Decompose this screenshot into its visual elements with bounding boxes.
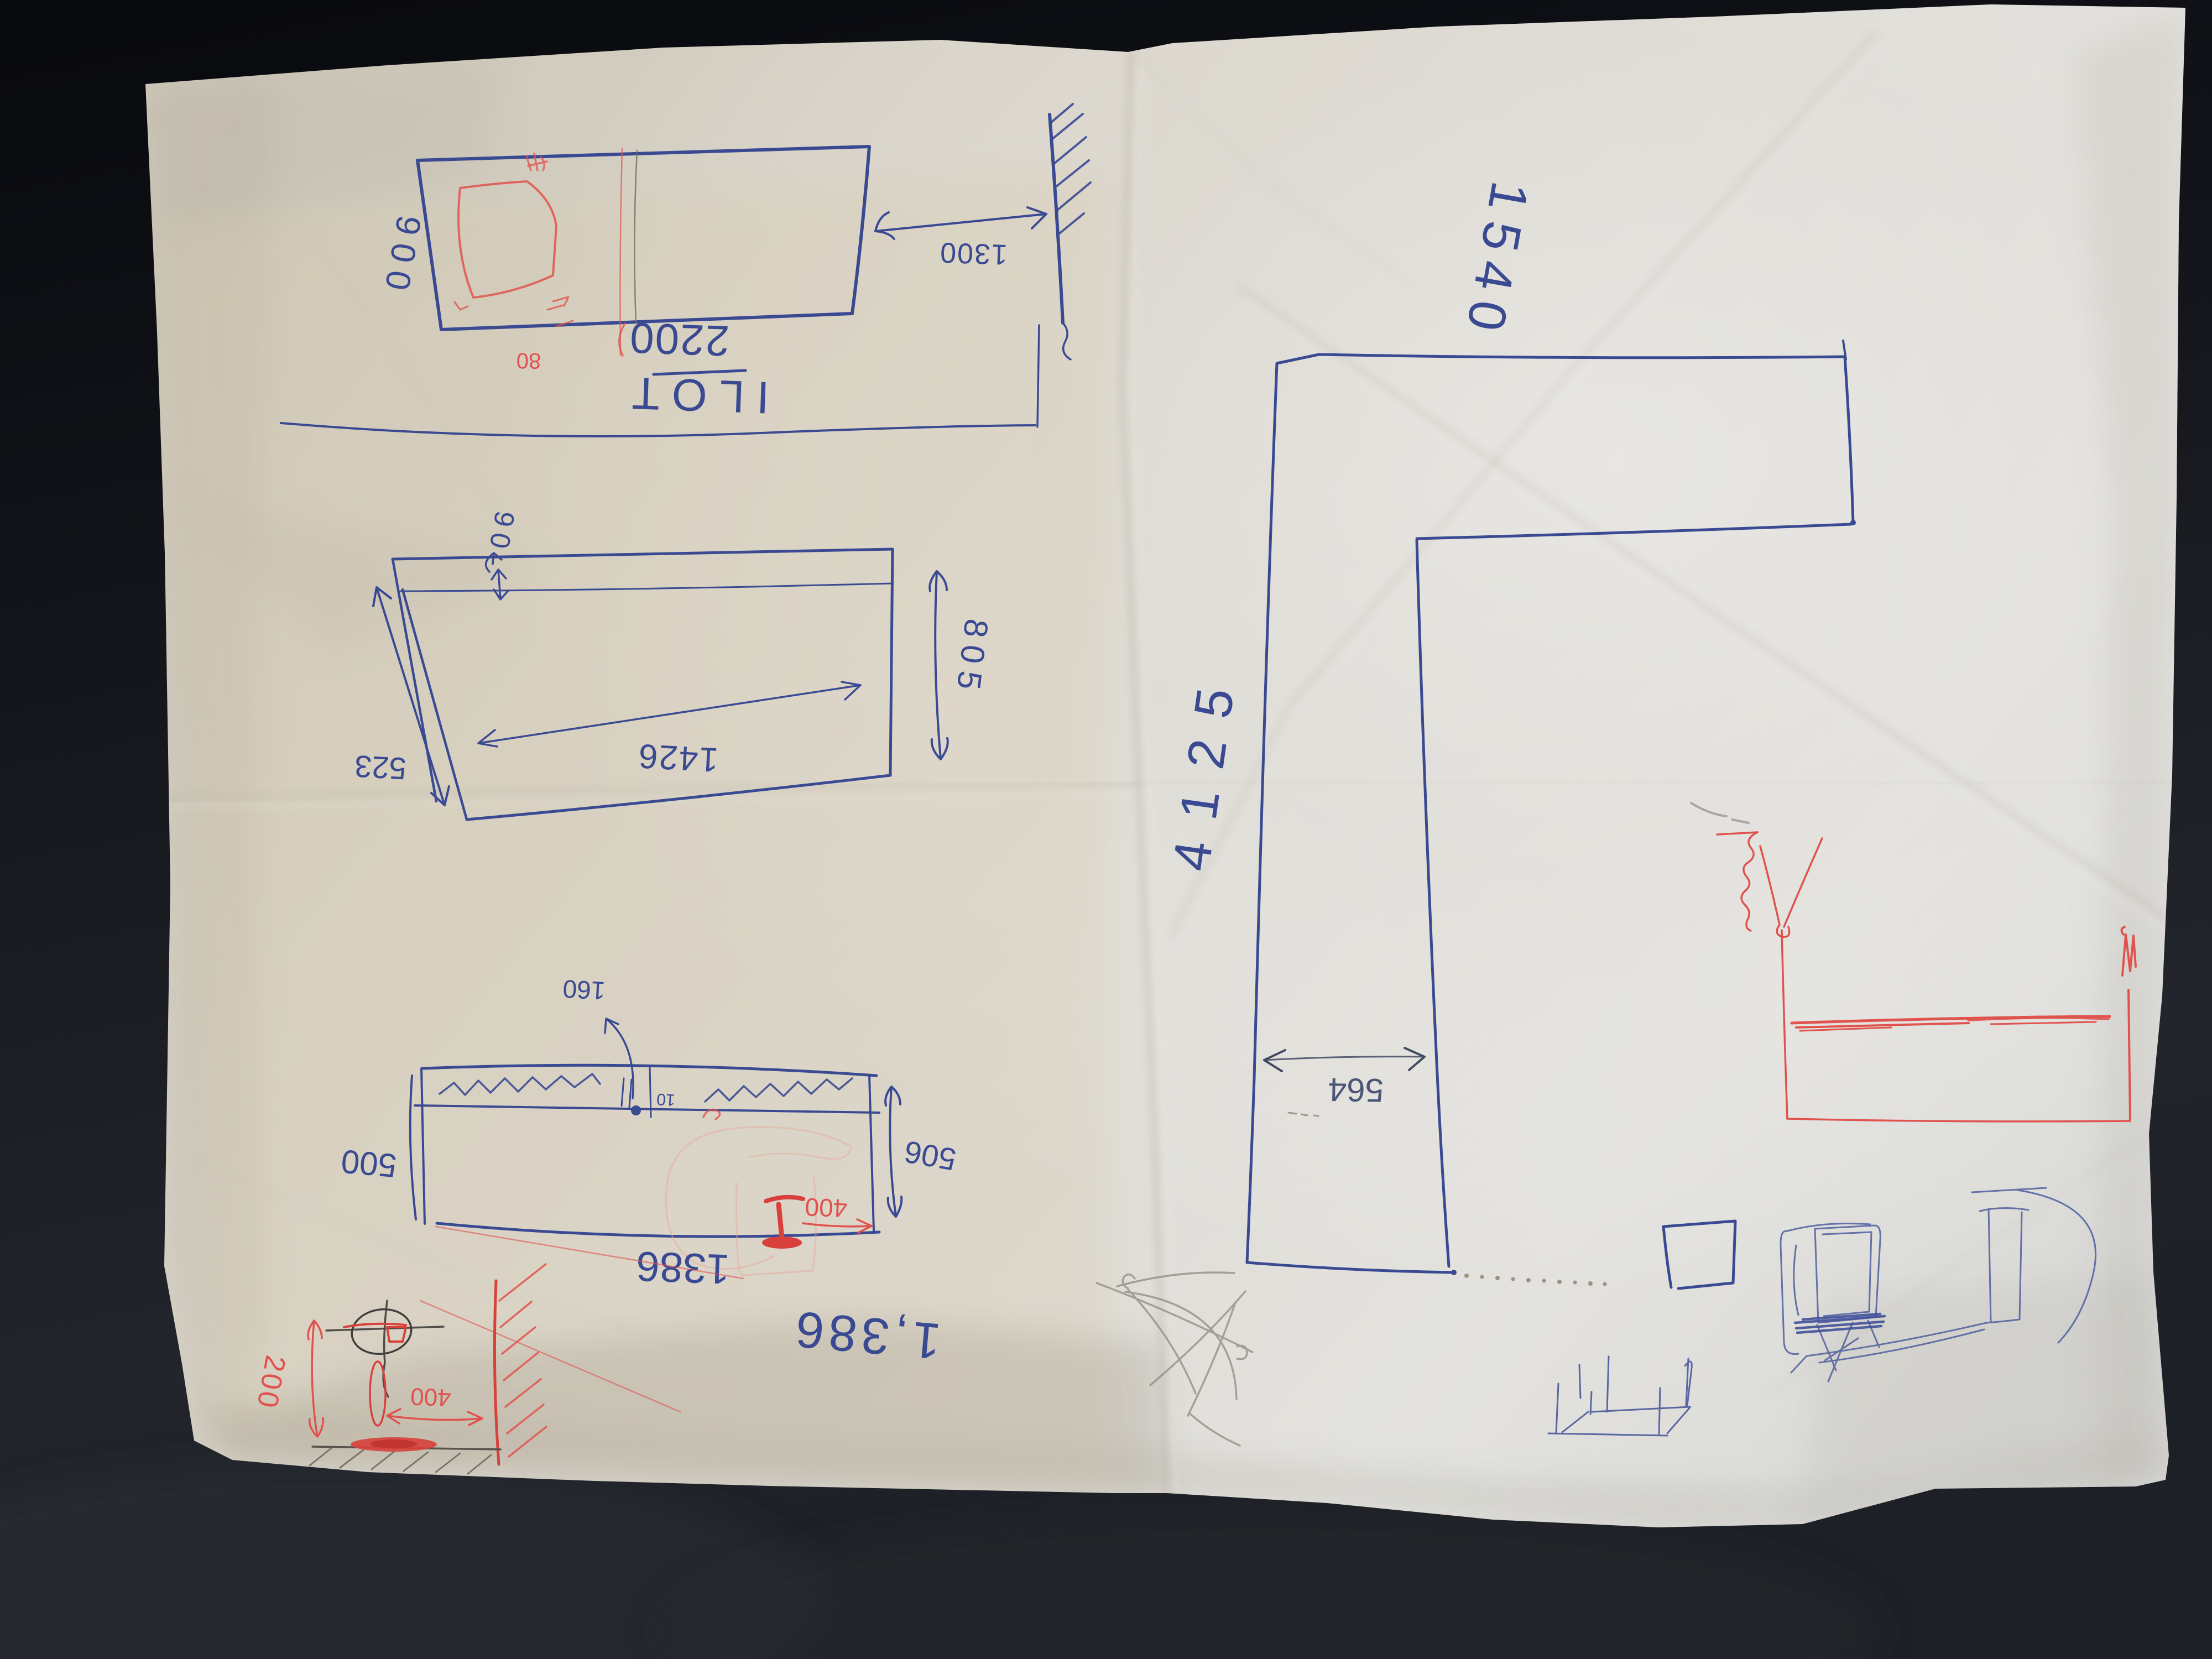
svg-text:80: 80 [516, 348, 541, 373]
svg-text:10: 10 [656, 1090, 675, 1109]
svg-text:2200: 2200 [628, 314, 730, 366]
svg-text:1300: 1300 [938, 236, 1008, 270]
svg-text:ILOT: ILOT [619, 367, 770, 422]
svg-text:160: 160 [562, 974, 606, 1005]
svg-text:500: 500 [340, 1142, 398, 1184]
svg-text:1386: 1386 [635, 1243, 731, 1293]
svg-text:400: 400 [805, 1193, 848, 1223]
svg-text:564: 564 [1328, 1071, 1384, 1109]
svg-text:1426: 1426 [637, 737, 719, 779]
svg-text:400: 400 [410, 1383, 451, 1411]
svg-text:523: 523 [354, 749, 408, 786]
